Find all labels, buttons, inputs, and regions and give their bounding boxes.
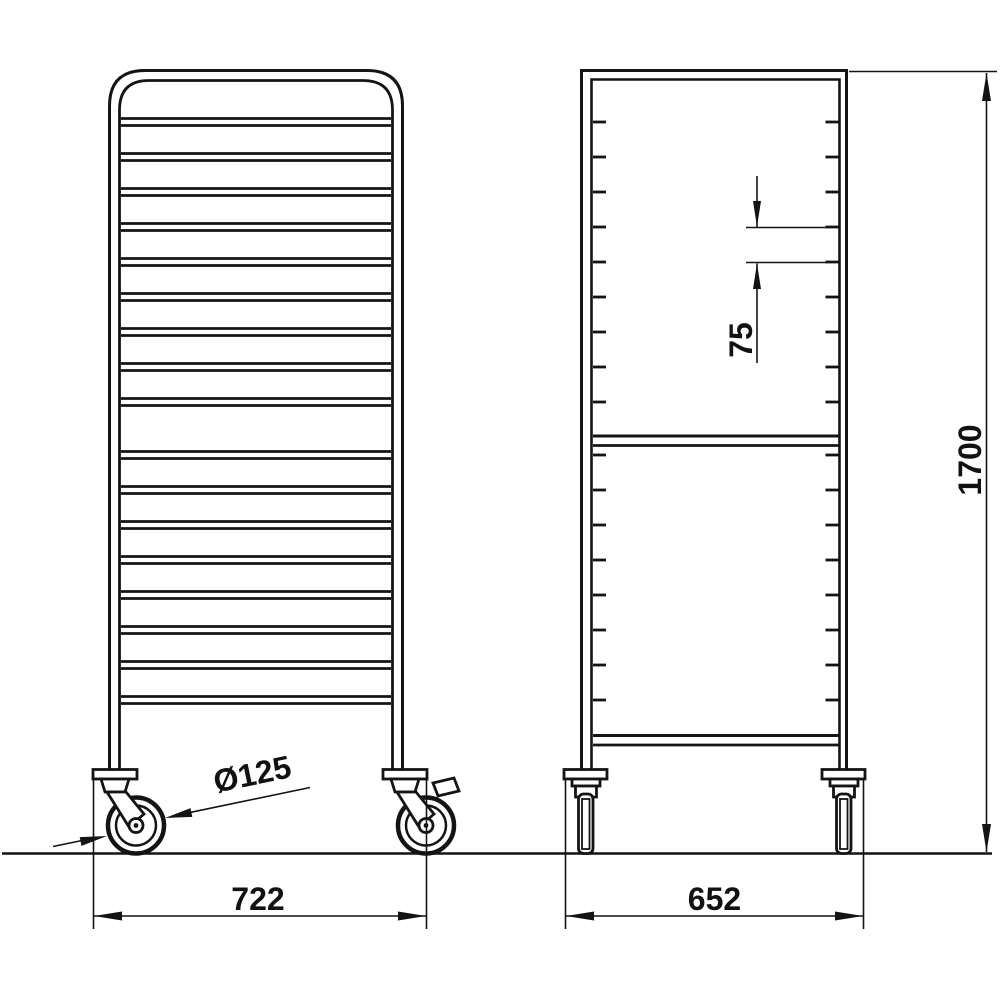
- side-left-plate: [564, 770, 607, 780]
- left-wheel-axle-dot: [134, 823, 139, 828]
- side-rail-ticks: [593, 122, 839, 700]
- left-caster-swivel: [101, 779, 129, 792]
- arrow-upper-right: [165, 808, 192, 818]
- rail-pitch-label: 75: [723, 322, 759, 358]
- side-caster-right: [822, 770, 865, 854]
- trolley-drawing: 722 652 1700 75 Ø125: [0, 0, 1000, 1000]
- side-frame-outer: [582, 71, 847, 771]
- right-caster-plate: [383, 770, 427, 780]
- front-width-label: 722: [231, 881, 284, 917]
- arrow-up: [753, 264, 761, 290]
- castor-diameter-label: Ø125: [210, 749, 294, 800]
- front-caster-left: [93, 770, 164, 854]
- side-right-plate: [822, 770, 865, 780]
- front-frame-outer-tube: [110, 71, 403, 771]
- side-depth-label: 652: [688, 881, 741, 917]
- overall-height-label: 1700: [952, 424, 988, 495]
- right-caster-brake-tab: [433, 778, 459, 796]
- dimension-rail-pitch: 75: [723, 176, 827, 363]
- front-caster-right: [383, 770, 459, 854]
- technical-drawing-canvas: 722 652 1700 75 Ø125: [0, 0, 1000, 1000]
- front-view: [93, 71, 459, 854]
- arrow-left: [566, 912, 594, 921]
- leader-line-lower: [53, 841, 82, 847]
- side-view: [564, 71, 865, 854]
- dimension-overall-height: 1700: [849, 72, 997, 853]
- right-caster-swivel: [391, 779, 419, 792]
- side-right-wheel: [837, 794, 852, 854]
- side-caster-left: [564, 770, 607, 854]
- arrow-up: [982, 73, 991, 101]
- side-frame-inner: [592, 80, 840, 771]
- arrow-down: [982, 824, 991, 852]
- left-caster-plate: [93, 770, 137, 780]
- arrow-right: [835, 912, 863, 921]
- arrow-left: [94, 912, 122, 921]
- side-mid-crossbar: [593, 436, 839, 446]
- arrow-right: [398, 912, 426, 921]
- front-rails: [121, 119, 391, 704]
- side-left-wheel: [579, 794, 594, 854]
- dimension-castor-diameter: Ø125: [53, 749, 310, 847]
- arrow-down: [753, 201, 761, 227]
- front-frame-inner-tube: [120, 81, 393, 771]
- side-lower-crossbar: [593, 736, 839, 746]
